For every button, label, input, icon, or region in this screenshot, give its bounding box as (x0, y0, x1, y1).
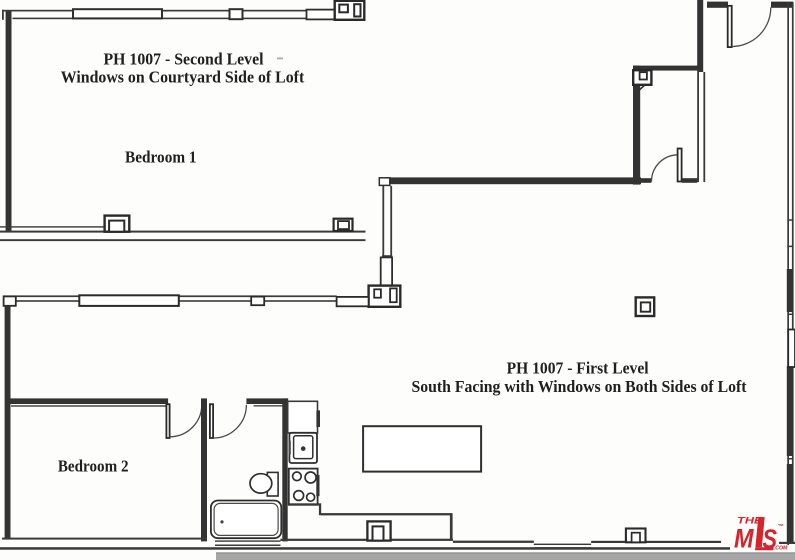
svg-text:PH 1007 - First Level: PH 1007 - First Level (507, 359, 649, 378)
svg-text:Bedroom 1: Bedroom 1 (125, 148, 197, 167)
svg-text:™: ™ (778, 523, 784, 530)
svg-text:.COM: .COM (774, 545, 788, 551)
svg-text:M: M (734, 523, 754, 553)
svg-text:PH 1007 - Second Level: PH 1007 - Second Level (104, 50, 264, 69)
svg-text:Bedroom 2: Bedroom 2 (58, 457, 129, 476)
svg-text:South Facing with Windows on B: South Facing with Windows on Both Sides … (412, 377, 747, 396)
svg-text:Windows on Courtyard Side of L: Windows on Courtyard Side of Loft (61, 68, 305, 87)
